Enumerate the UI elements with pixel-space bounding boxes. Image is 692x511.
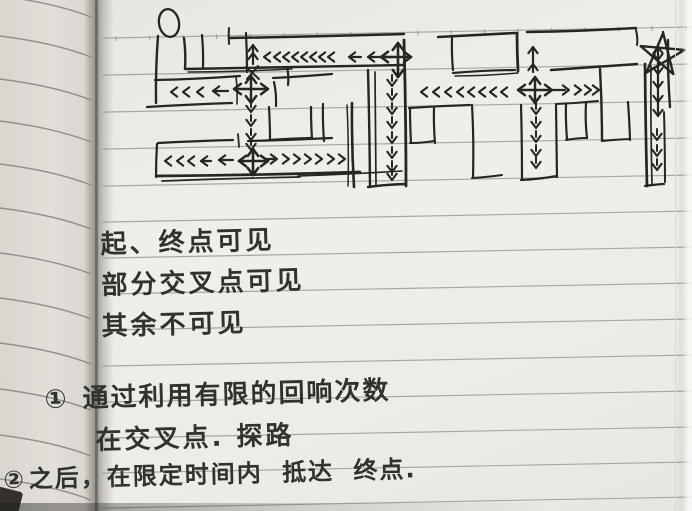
left-page-ruled-lines bbox=[0, 0, 91, 500]
note-item-1-line-2: 在交叉点. 探路 bbox=[95, 415, 295, 457]
note-visibility-line-1: 起、终点可见 bbox=[100, 219, 275, 261]
start-oval-marker bbox=[157, 7, 182, 38]
page-right-edge bbox=[675, 0, 692, 511]
maze-walls bbox=[147, 28, 670, 187]
page-bottom-shadow bbox=[0, 503, 692, 511]
note-visibility-line-2: 部分交叉点可见 bbox=[101, 260, 305, 302]
notebook-page-photo: 起、终点可见 部分交叉点可见 其余不可见 ①通过利用有限的回响次数 在交叉点. … bbox=[0, 0, 692, 511]
note-visibility-line-3: 其余不可见 bbox=[101, 302, 247, 343]
item-1-bullet: ① bbox=[44, 384, 69, 415]
